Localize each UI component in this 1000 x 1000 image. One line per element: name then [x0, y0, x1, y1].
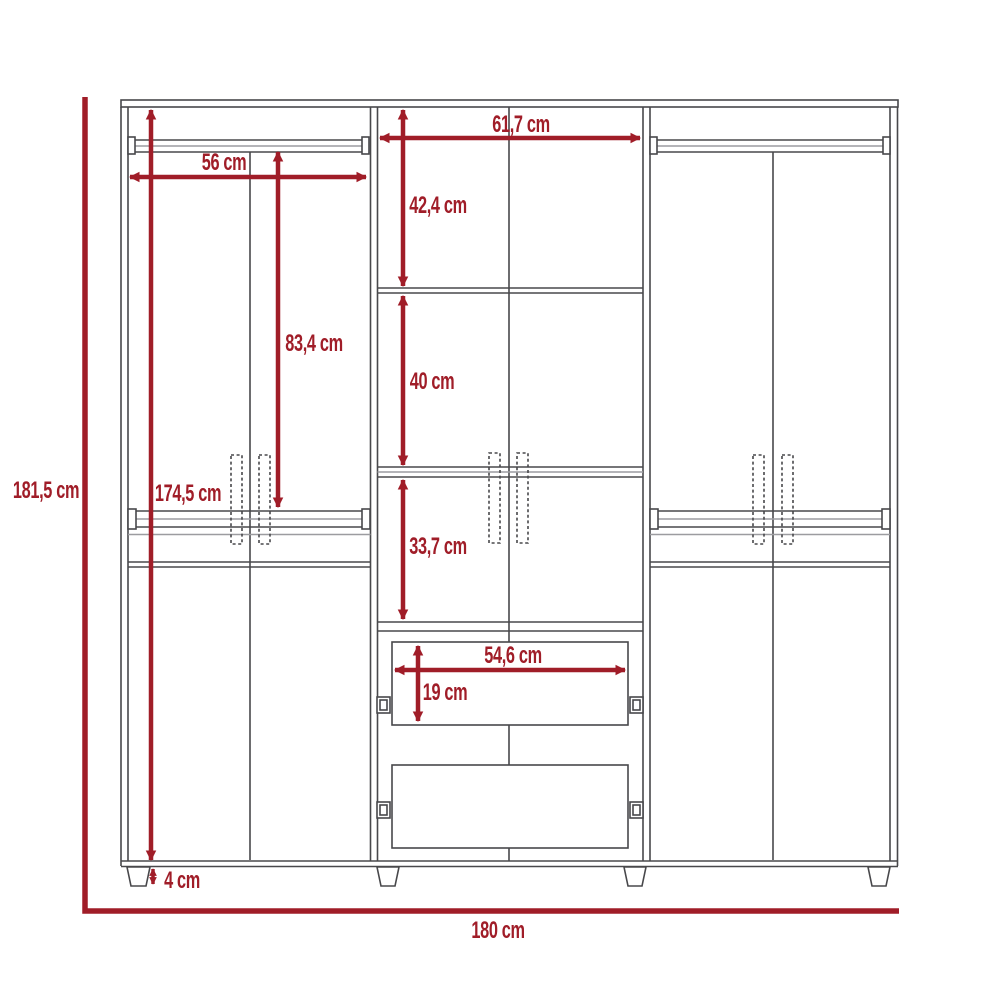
- left-rod1-bracket-right: [362, 137, 369, 154]
- wardrobe-feet: [127, 867, 890, 886]
- dim-label-interior-height: 174,5 cm: [155, 480, 221, 508]
- dim-label-left-rod-width: 56 cm: [202, 149, 247, 177]
- left-door-handle-left: [231, 455, 242, 544]
- dim-label-drawer-width: 54,6 cm: [484, 642, 542, 670]
- right-rod1-bracket-left: [650, 137, 657, 154]
- dim-label-lower-shelf: 33,7 cm: [409, 533, 467, 561]
- dim-label-total-width: 180 cm: [471, 917, 524, 945]
- left-rod2-bracket-left: [128, 509, 136, 529]
- right-rod2-bracket-right: [882, 509, 890, 529]
- dim-label-top-shelf: 42,4 cm: [409, 192, 467, 220]
- left-rod1-bracket-left: [128, 137, 135, 154]
- dim-label-center-width: 61,7 cm: [492, 111, 550, 139]
- dim-label-leg-height: 4 cm: [164, 867, 200, 895]
- dim-label-drawer-height: 19 cm: [423, 679, 468, 707]
- wardrobe-dimension-diagram: 181,5 cm 174,5 cm 56 cm 83,4 cm 61,7 cm …: [0, 0, 1000, 1000]
- center-section: [377, 107, 643, 861]
- foot-1: [127, 867, 150, 886]
- right-door-handle-left: [753, 455, 764, 544]
- right-section: [650, 137, 890, 860]
- dim-label-rod-drop: 83,4 cm: [285, 330, 343, 358]
- dim-label-middle-shelf: 40 cm: [410, 368, 455, 396]
- left-door-handle-right: [259, 455, 270, 544]
- drawer-lower: [392, 765, 628, 848]
- foot-2: [377, 867, 399, 886]
- right-rod2-bracket-left: [650, 509, 658, 529]
- foot-4: [868, 867, 890, 886]
- top-panel: [121, 100, 898, 107]
- right-rod1-bracket-right: [883, 137, 890, 154]
- foot-3: [624, 867, 646, 886]
- diagram-canvas: [0, 0, 1000, 1000]
- right-door-handle-right: [782, 455, 793, 544]
- dim-label-total-height: 181,5 cm: [13, 477, 79, 505]
- left-rod2-bracket-right: [362, 509, 370, 529]
